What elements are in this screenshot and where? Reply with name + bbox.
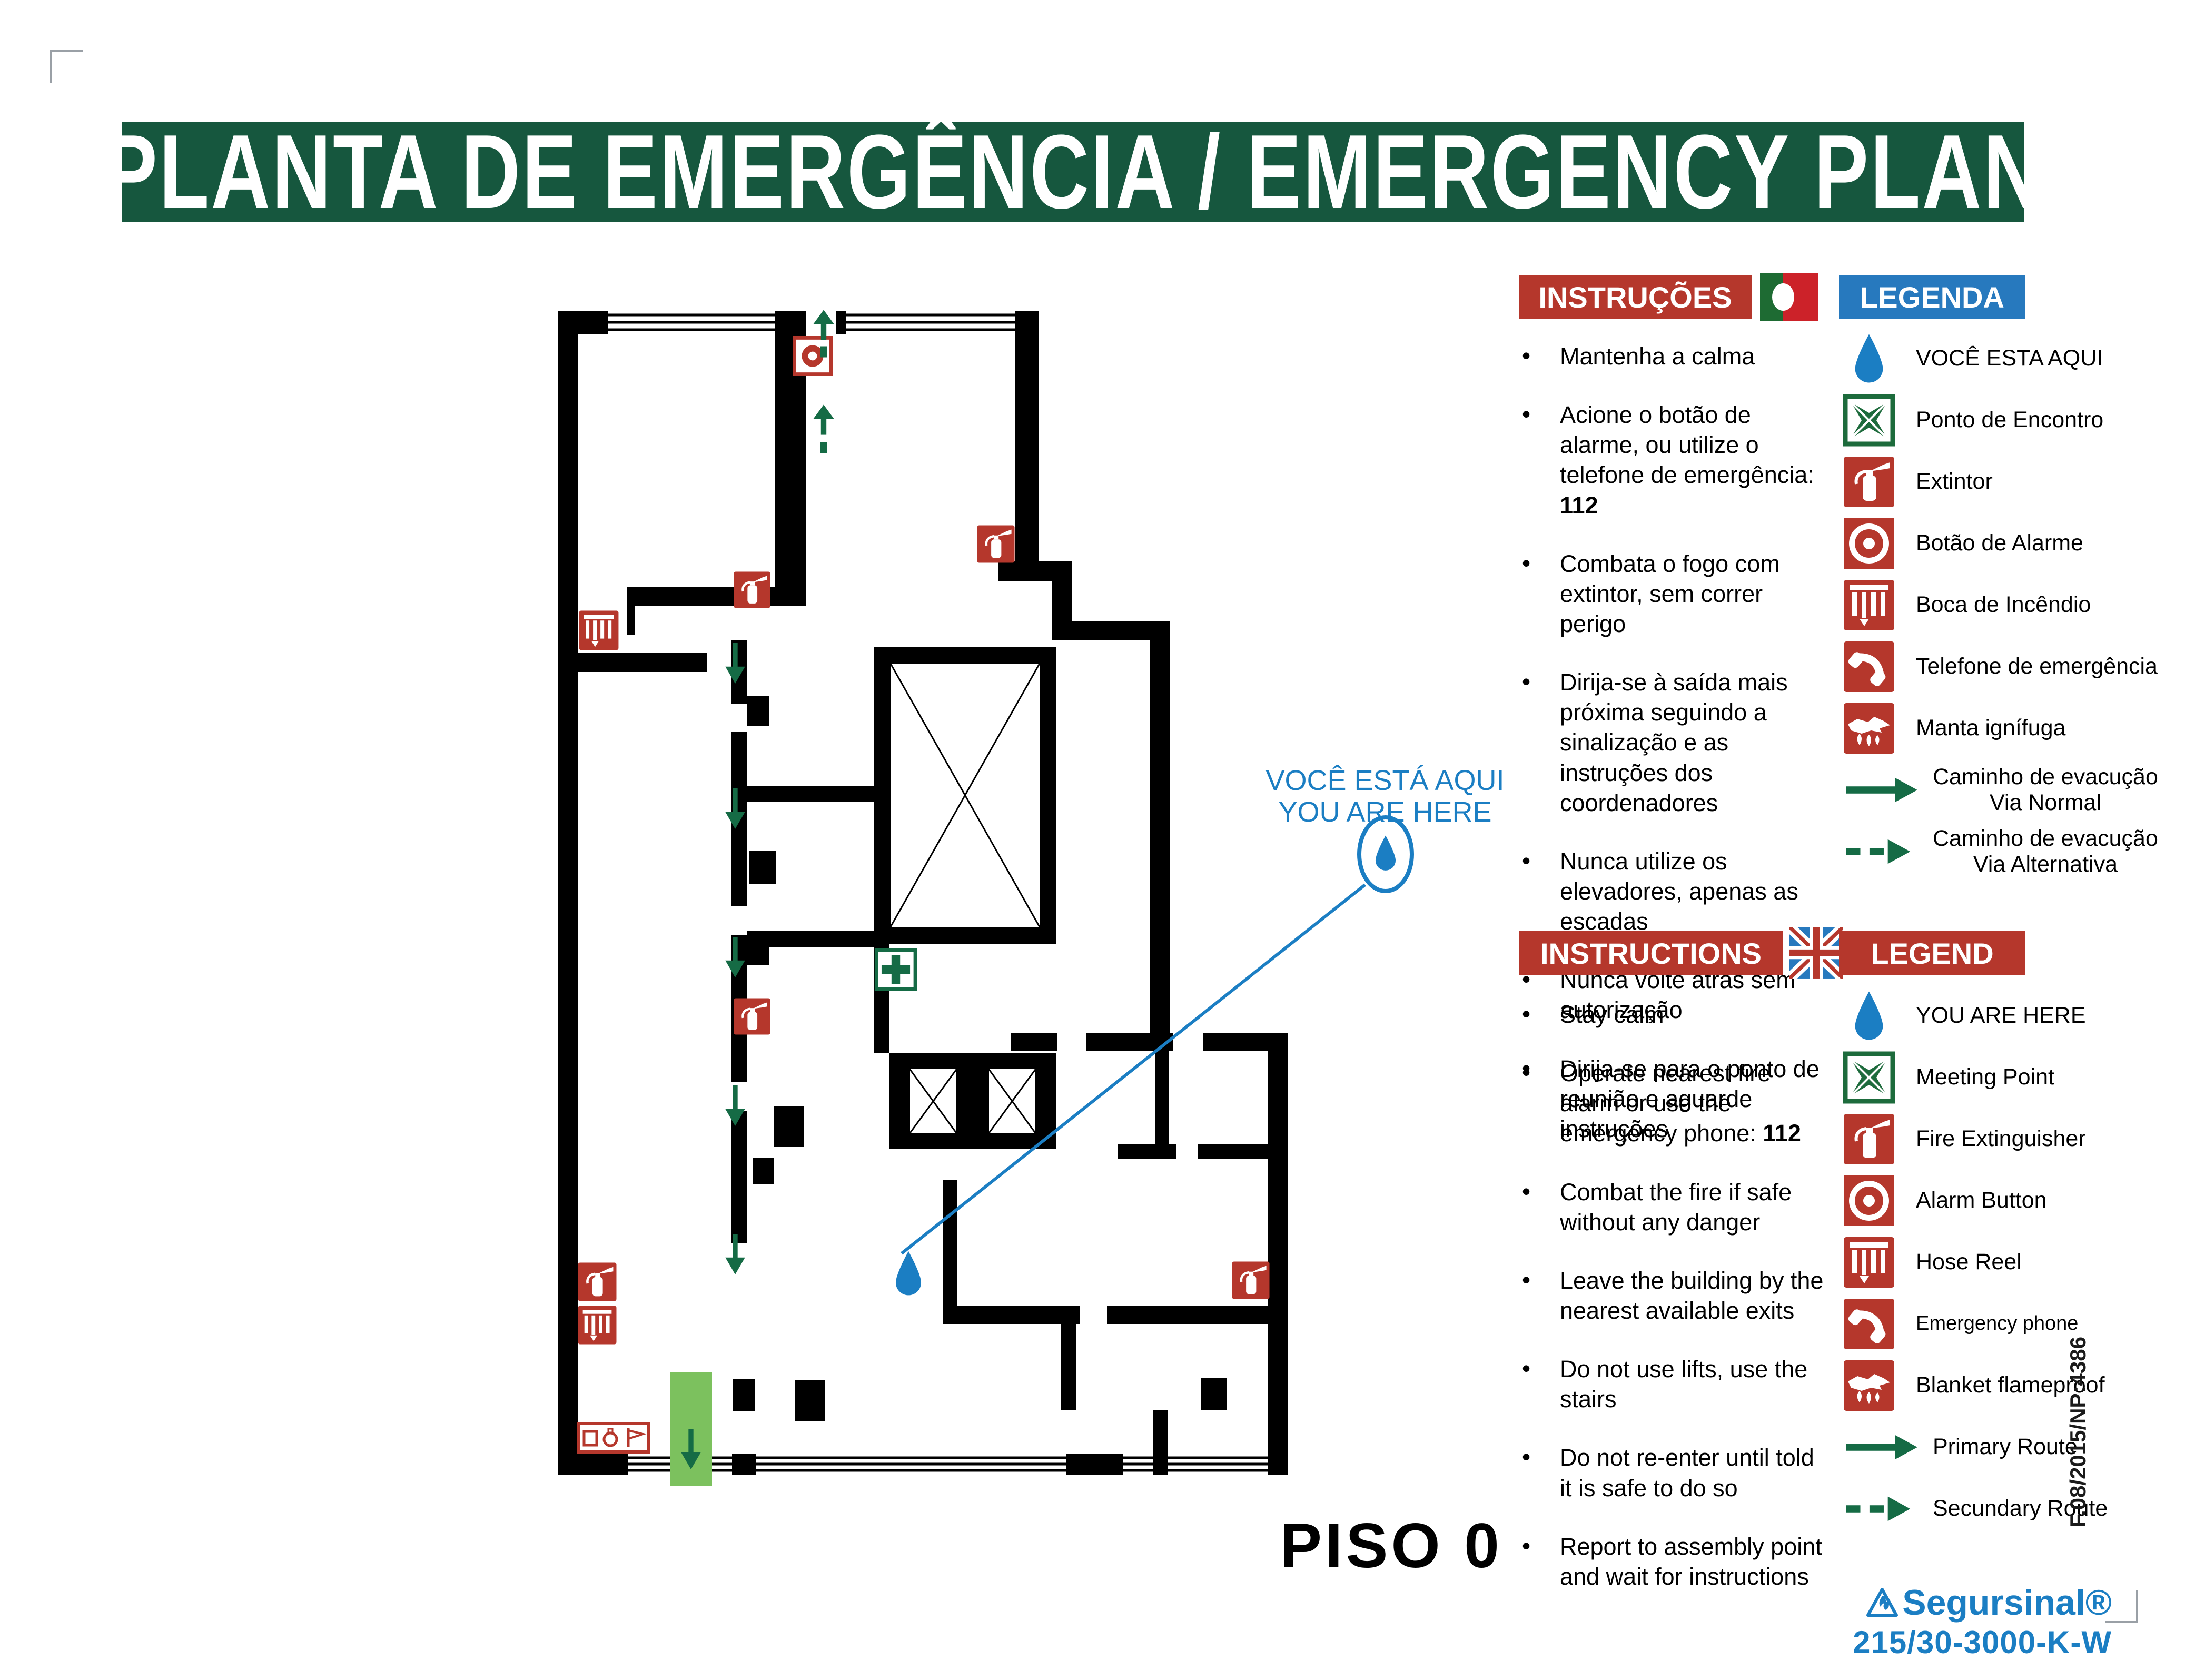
legend-label: Ponto de Encontro [1916, 407, 2103, 433]
instruction-text: Mantenha a calma [1560, 341, 1826, 371]
bullet: • [1522, 549, 1560, 639]
crop-mark-bottom-right-v [2136, 1590, 2138, 1623]
legend-row: Hose Reel [1841, 1236, 2204, 1289]
fire-extinguisher-icon [1841, 1112, 1897, 1166]
hose-reel-marker [579, 611, 619, 650]
legend-label: Primary Route [1933, 1434, 2078, 1460]
emergency-plan-poster: { "title": "PLANTA DE EMERGÊNCIA / EMERG… [0, 0, 2205, 1680]
fire-extinguisher-icon [1841, 455, 1897, 509]
instruction-text: Combat the fire if safe without any dang… [1560, 1177, 1826, 1237]
legend-row: Blanket flameproof [1841, 1359, 2204, 1412]
bullet: • [1522, 1266, 1560, 1326]
instruction-item: •Combata o fogo com extintor, sem correr… [1522, 549, 1827, 639]
you-are-here-icon [1841, 989, 1897, 1043]
legend-label: Fire Extinguisher [1916, 1126, 2086, 1152]
en-legend-header: LEGEND [1839, 931, 2025, 975]
dash-marker [820, 347, 827, 358]
legend-row: Extintor [1841, 455, 2204, 509]
legend-row: Ponto de Encontro [1841, 393, 2204, 447]
legend-row: Boca de Incêndio [1841, 578, 2204, 632]
bullet: • [1522, 400, 1560, 520]
callout-line2: YOU ARE HERE [1278, 796, 1491, 828]
legend-row: Emergency phone [1841, 1297, 2204, 1351]
instruction-item: •Leave the building by the nearest avail… [1522, 1266, 1827, 1326]
brand-block: Segursinal® 215/30-3000-K-W [1817, 1582, 2112, 1661]
instruction-item: •Mantenha a calma [1522, 341, 1827, 371]
emergency-phone-icon [1841, 640, 1897, 694]
legend-label: Alarm Button [1916, 1188, 2047, 1213]
legend-row: Primary Route [1841, 1420, 2204, 1474]
legend-row: Botão de Alarme [1841, 517, 2204, 570]
pt-instructions-header: INSTRUÇÕES [1519, 275, 1752, 319]
route-dashed-icon [1841, 825, 1925, 878]
you-are-here-icon [1841, 332, 1897, 386]
legend-label: YOU ARE HERE [1916, 1003, 2086, 1029]
legend-label: Extintor [1916, 469, 1993, 495]
pt-legend-list: VOCÊ ESTA AQUIPonto de EncontroExtintorB… [1841, 332, 2204, 886]
brand-flame-icon [1865, 1587, 1899, 1618]
bullet: • [1522, 341, 1560, 371]
instruction-text: Acione o botão de alarme, ou utilize o t… [1560, 400, 1826, 520]
bullet: • [1522, 1058, 1560, 1148]
legend-label: Botão de Alarme [1916, 530, 2083, 556]
instruction-text: Do not use lifts, use the stairs [1560, 1354, 1826, 1414]
reference-number: F.08/2015/NP:4386 [2065, 1190, 2091, 1527]
dash-marker [820, 442, 827, 453]
legend-label: Hose Reel [1916, 1249, 2022, 1275]
instruction-item: •Do not re-enter until told it is safe t… [1522, 1442, 1827, 1503]
instruction-item: •Combat the fire if safe without any dan… [1522, 1177, 1827, 1237]
instruction-text: Leave the building by the nearest availa… [1560, 1266, 1826, 1326]
crop-mark-top-left-h [50, 50, 83, 52]
legend-label: Manta ignífuga [1916, 715, 2065, 741]
legend-label: Boca de Incêndio [1916, 592, 2091, 618]
legend-label: VOCÊ ESTA AQUI [1916, 345, 2103, 371]
legend-label: Telefone de emergência [1916, 654, 2158, 679]
you-are-here-callout: VOCÊ ESTÁ AQUI YOU ARE HERE [902, 765, 1505, 1253]
legend-row: Caminho de evacuçãoVia Normal [1841, 763, 2204, 817]
droplet-marker [896, 1251, 921, 1296]
hose-reel-marker [578, 1306, 617, 1345]
page-title: PLANTA DE EMERGÊNCIA / EMERGENCY PLAN [103, 112, 2044, 233]
route-dashed-icon [1841, 1482, 1925, 1536]
instruction-text: Report to assembly point and wait for in… [1560, 1531, 1826, 1592]
en-instructions-header: INSTRUCTIONS [1519, 931, 1783, 975]
instruction-text: Stay calm [1560, 1000, 1826, 1030]
callout-line1: VOCÊ ESTÁ AQUI [1265, 765, 1504, 796]
en-legend-list: YOU ARE HEREMeeting PointFire Extinguish… [1841, 989, 2204, 1544]
legend-row: Meeting Point [1841, 1051, 2204, 1104]
instruction-item: •Report to assembly point and wait for i… [1522, 1531, 1827, 1592]
bullet: • [1522, 1531, 1560, 1592]
uk-flag-icon [1789, 927, 1843, 979]
extinguisher-marker [734, 571, 770, 608]
extinguisher-marker [1232, 1261, 1269, 1299]
legend-row: Alarm Button [1841, 1174, 2204, 1228]
extinguisher-marker [977, 525, 1014, 562]
plan-walls [558, 311, 1288, 1475]
legend-row: YOU ARE HERE [1841, 989, 2204, 1043]
legend-row: Caminho de evacuçãoVia Alternativa [1841, 825, 2204, 878]
info-sign-marker [578, 1424, 649, 1452]
emergency-phone-icon [1841, 1297, 1897, 1351]
fire-blanket-icon [1841, 1359, 1897, 1412]
extinguisher-marker [734, 998, 770, 1034]
instruction-item: •Acione o botão de alarme, ou utilize o … [1522, 400, 1827, 520]
instruction-text: Do not re-enter until told it is safe to… [1560, 1442, 1826, 1503]
floor-label: PISO 0 [1280, 1509, 1502, 1582]
alarm-button-icon [1841, 517, 1897, 570]
meeting-point-icon [1841, 393, 1897, 447]
legend-label: Caminho de evacuçãoVia Normal [1933, 764, 2158, 816]
instruction-text: Dirija-se à saída mais próxima seguindo … [1560, 667, 1826, 818]
alarm-button-icon [1841, 1174, 1897, 1228]
brand-code: 215/30-3000-K-W [1817, 1624, 2112, 1661]
route-solid-icon [1841, 763, 1925, 817]
legend-label: Caminho de evacuçãoVia Alternativa [1933, 826, 2158, 878]
brand-name: Segursinal® [1902, 1582, 2112, 1623]
legend-row: Fire Extinguisher [1841, 1112, 2204, 1166]
legend-label: Meeting Point [1916, 1064, 2054, 1090]
bullet: • [1522, 667, 1560, 818]
pt-legend-header: LEGENDA [1839, 275, 2025, 319]
first-aid-marker [876, 950, 915, 989]
instruction-text: Nunca utilize os elevadores, apenas as e… [1560, 846, 1826, 936]
legend-row: VOCÊ ESTA AQUI [1841, 332, 2204, 386]
instruction-item: •Nunca utilize os elevadores, apenas as … [1522, 846, 1827, 936]
legend-row: Manta ignífuga [1841, 701, 2204, 755]
bullet: • [1522, 1000, 1560, 1030]
bullet: • [1522, 1442, 1560, 1503]
floor-plan: VOCÊ ESTÁ AQUI YOU ARE HERE [548, 295, 1517, 1496]
route-solid-icon [1841, 1420, 1925, 1474]
instruction-item: •Dirija-se à saída mais próxima seguindo… [1522, 667, 1827, 818]
instruction-item: •Operate nearest fire alarm or use the e… [1522, 1058, 1827, 1148]
title-banner: PLANTA DE EMERGÊNCIA / EMERGENCY PLAN [122, 122, 2024, 222]
legend-label: Emergency phone [1916, 1312, 2078, 1336]
legend-row: Telefone de emergência [1841, 640, 2204, 694]
en-instructions-list: •Stay calm•Operate nearest fire alarm or… [1522, 1000, 1827, 1620]
fire-blanket-icon [1841, 701, 1897, 755]
hose-reel-icon [1841, 1236, 1897, 1289]
instruction-item: •Do not use lifts, use the stairs [1522, 1354, 1827, 1414]
arrow-up-marker [813, 404, 834, 434]
extinguisher-marker [578, 1263, 617, 1301]
instruction-item: •Stay calm [1522, 1000, 1827, 1030]
legend-row: Secundary Route [1841, 1482, 2204, 1536]
meeting-point-icon [1841, 1051, 1897, 1104]
bullet: • [1522, 1354, 1560, 1414]
instruction-text: Operate nearest fire alarm or use the em… [1560, 1058, 1826, 1148]
bullet: • [1522, 1177, 1560, 1237]
hose-reel-icon [1841, 578, 1897, 632]
portugal-flag-icon [1760, 273, 1818, 321]
bullet: • [1522, 846, 1560, 936]
crop-mark-top-left-v [50, 50, 52, 83]
instruction-text: Combata o fogo com extintor, sem correr … [1560, 549, 1826, 639]
arrow-up-marker [813, 310, 834, 340]
